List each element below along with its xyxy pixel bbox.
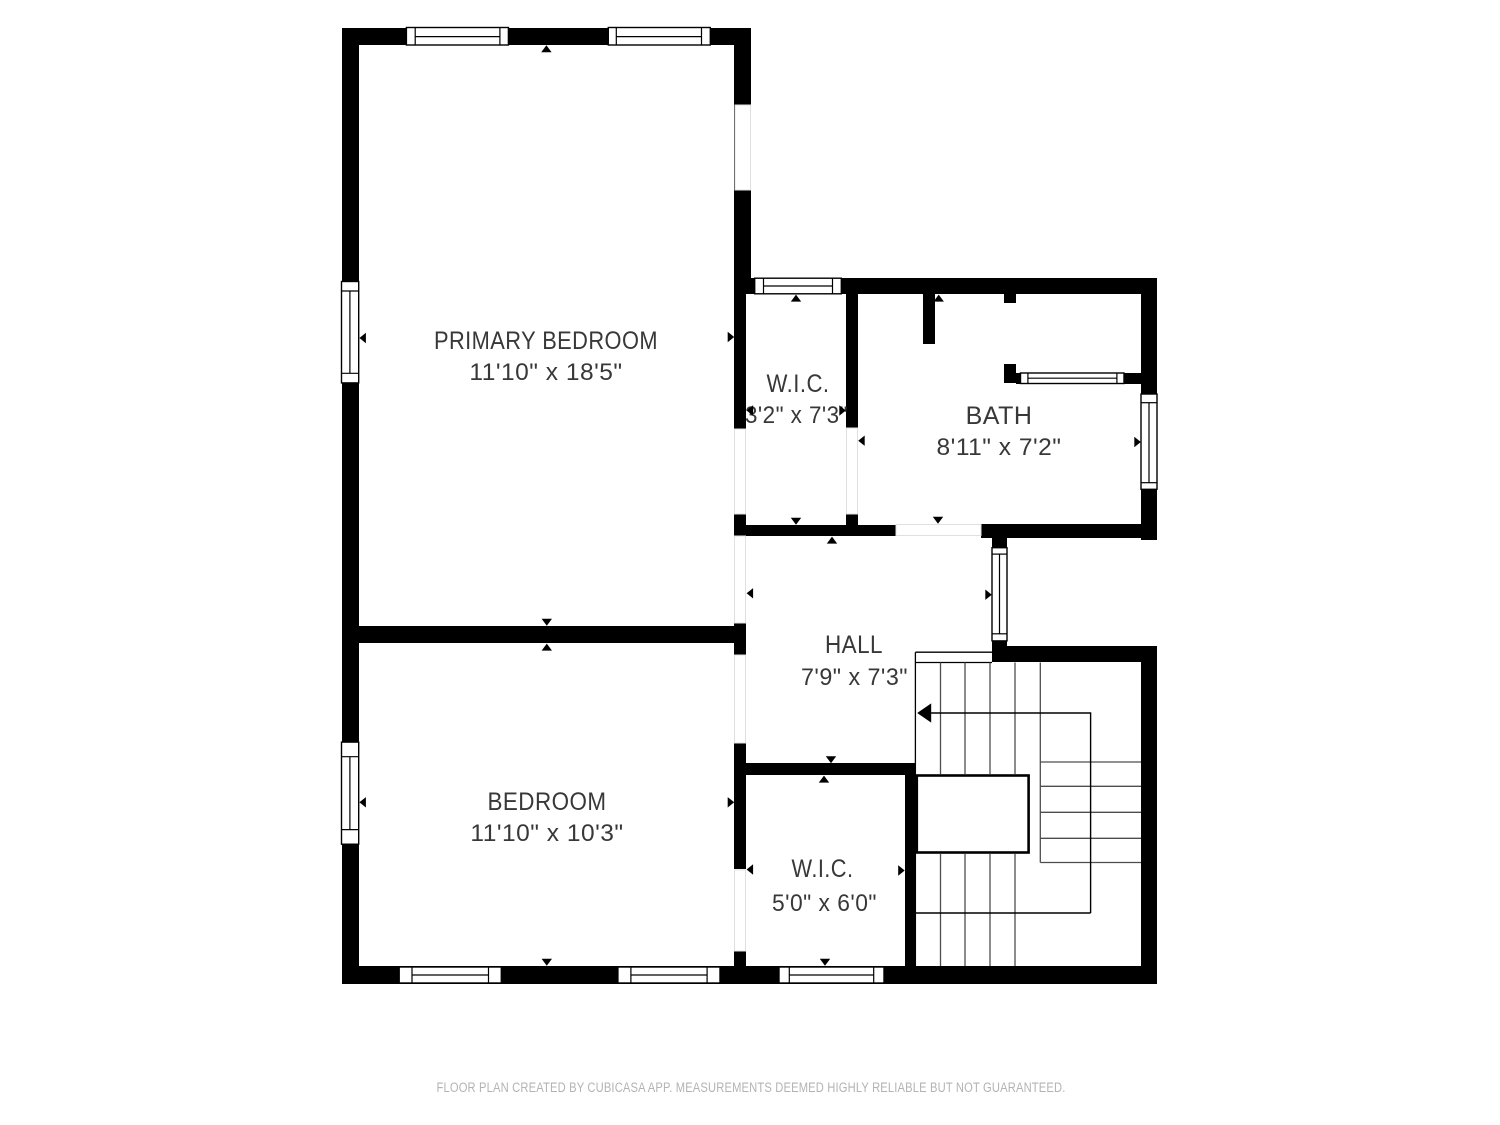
- svg-text:HALL: HALL: [825, 631, 883, 659]
- svg-text:7'9" x 7'3": 7'9" x 7'3": [801, 664, 908, 691]
- svg-text:11'10" x 10'3": 11'10" x 10'3": [470, 820, 623, 847]
- svg-text:W.I.C.: W.I.C.: [792, 855, 854, 883]
- svg-text:8'11" x 7'2": 8'11" x 7'2": [937, 434, 1062, 461]
- svg-text:5'0" x 6'0": 5'0" x 6'0": [772, 890, 877, 917]
- svg-text:BATH: BATH: [966, 402, 1033, 430]
- svg-text:11'10" x 18'5": 11'10" x 18'5": [469, 359, 622, 386]
- svg-text:W.I.C.: W.I.C.: [767, 370, 830, 398]
- svg-text:BEDROOM: BEDROOM: [488, 788, 607, 816]
- svg-text:3'2" x 7'3": 3'2" x 7'3": [745, 402, 848, 429]
- svg-text:PRIMARY BEDROOM: PRIMARY BEDROOM: [434, 327, 658, 355]
- svg-text:FLOOR PLAN CREATED BY CUBICASA: FLOOR PLAN CREATED BY CUBICASA APP. MEAS…: [437, 1080, 1066, 1095]
